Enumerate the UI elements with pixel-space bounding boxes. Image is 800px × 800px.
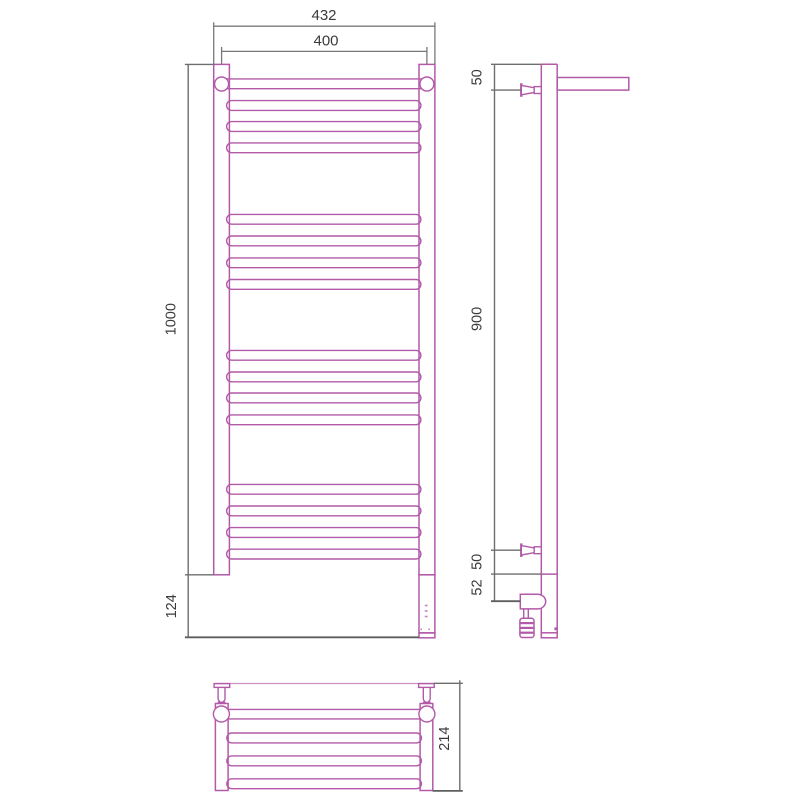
svg-text:432: 432: [311, 7, 336, 24]
svg-text:50: 50: [470, 69, 486, 85]
svg-text:124: 124: [164, 594, 180, 618]
svg-text:400: 400: [313, 33, 338, 50]
svg-text:214: 214: [437, 726, 453, 750]
svg-text:52: 52: [470, 579, 486, 595]
svg-text:50: 50: [470, 554, 486, 570]
svg-text:1000: 1000: [164, 303, 180, 335]
svg-text:900: 900: [470, 307, 486, 331]
